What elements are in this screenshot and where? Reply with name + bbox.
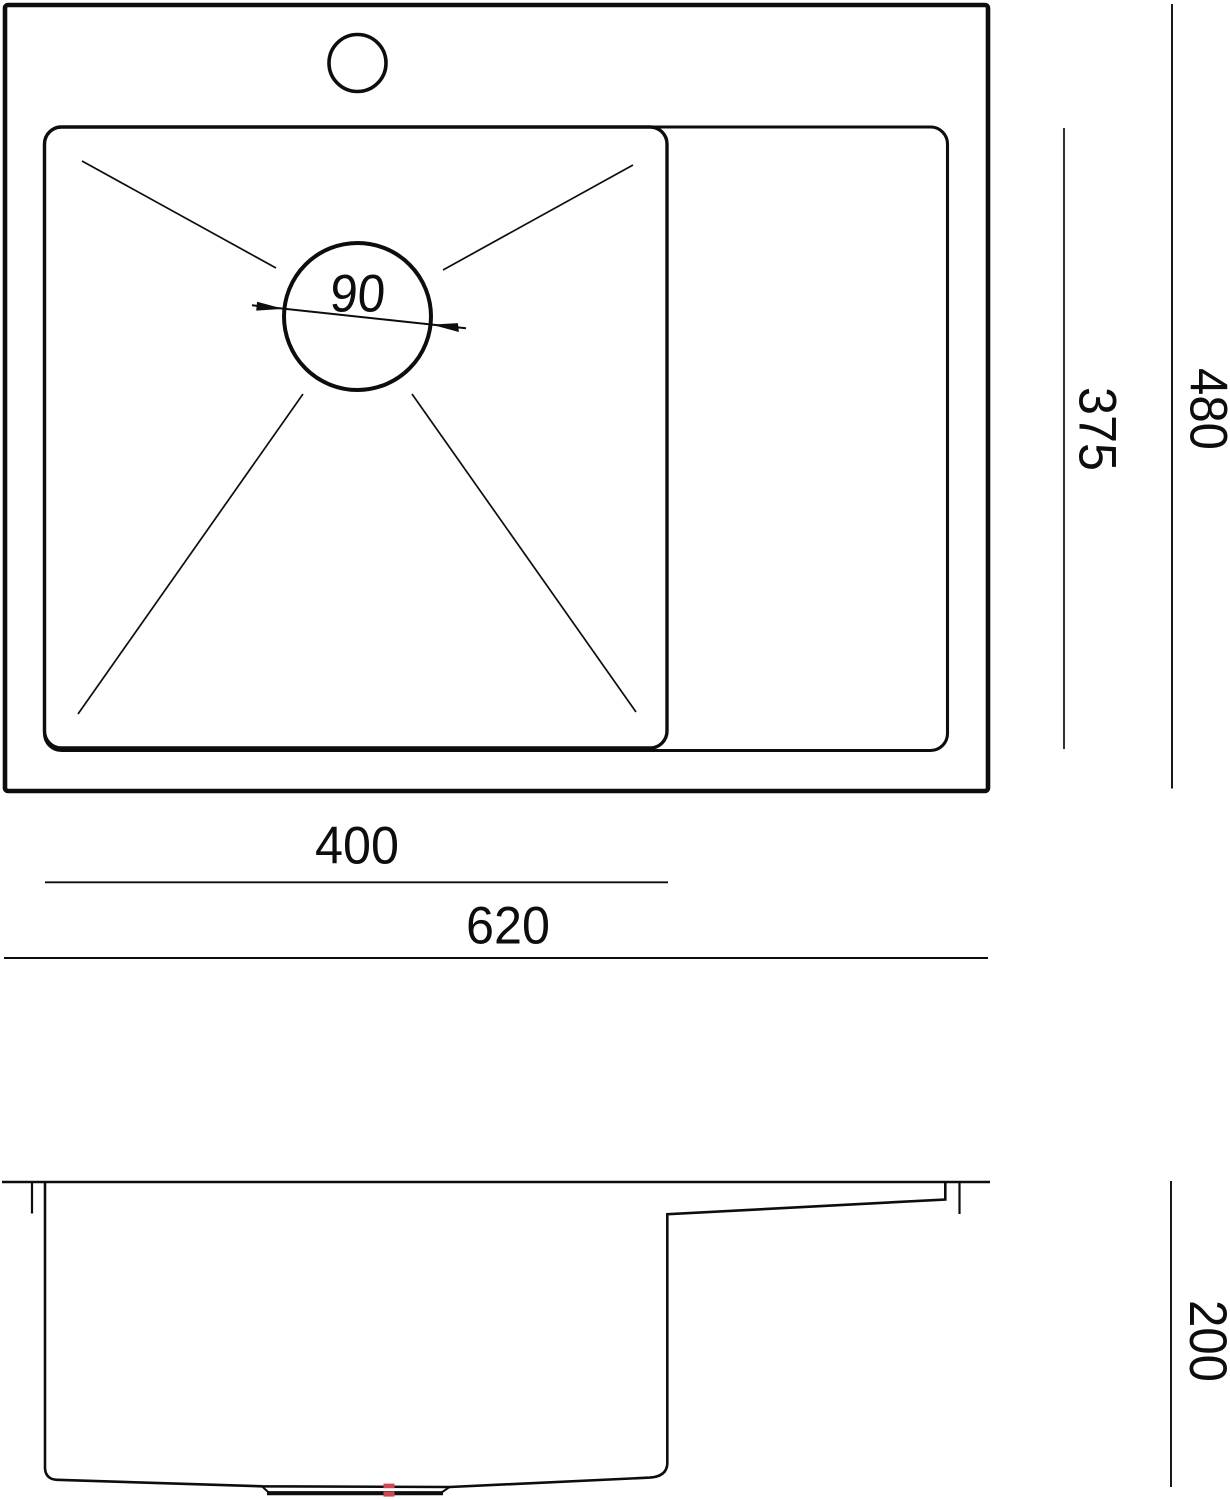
svg-text:400: 400 xyxy=(315,817,399,876)
svg-text:200: 200 xyxy=(1178,1300,1230,1382)
svg-text:375: 375 xyxy=(1068,387,1127,471)
svg-text:480: 480 xyxy=(1179,368,1230,450)
svg-text:90: 90 xyxy=(328,265,387,324)
svg-text:620: 620 xyxy=(466,897,550,956)
